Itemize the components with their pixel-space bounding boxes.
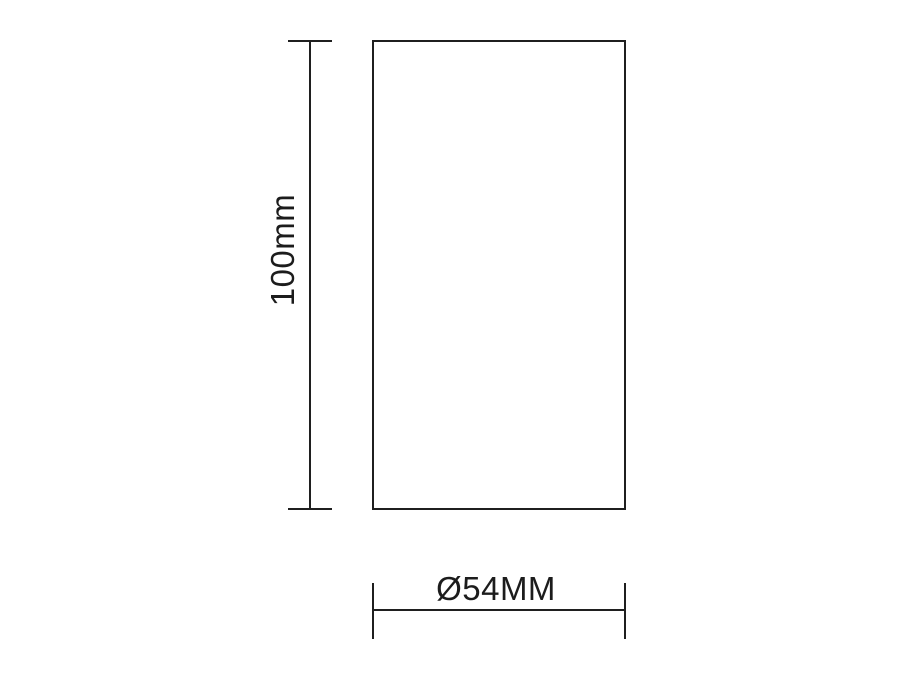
width-dimension-line <box>372 609 626 611</box>
height-dimension-line <box>309 41 311 509</box>
width-dimension-right-tick <box>624 583 626 639</box>
width-dimension-left-tick <box>372 583 374 639</box>
height-dimension-top-tick <box>288 40 332 42</box>
height-dimension-label: 100mm <box>264 194 302 307</box>
height-dimension-bottom-tick <box>288 508 332 510</box>
dimension-drawing-canvas: 100mm Ø54MM <box>0 0 900 675</box>
width-dimension-label: Ø54MM <box>436 570 556 608</box>
product-outline-rectangle <box>372 40 626 510</box>
